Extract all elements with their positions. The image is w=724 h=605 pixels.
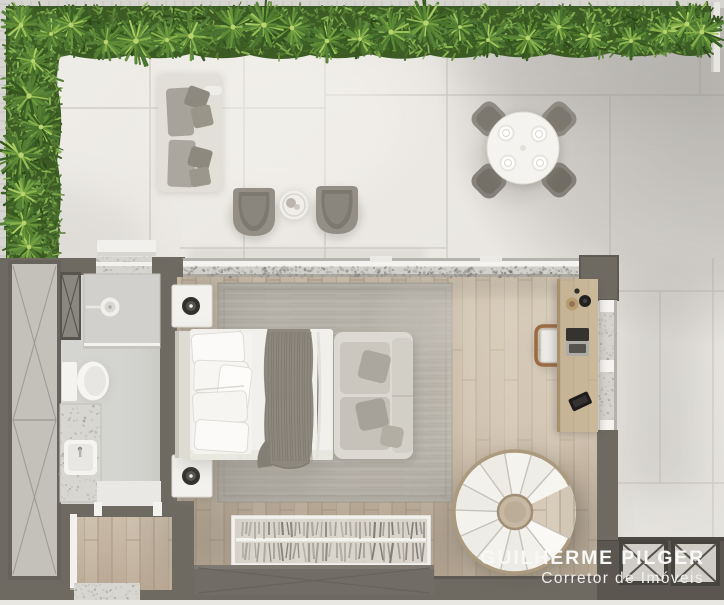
svg-text:GUILHERME PILGER: GUILHERME PILGER [480, 547, 705, 569]
svg-text:Corretor de Imóveis: Corretor de Imóveis [541, 570, 704, 587]
